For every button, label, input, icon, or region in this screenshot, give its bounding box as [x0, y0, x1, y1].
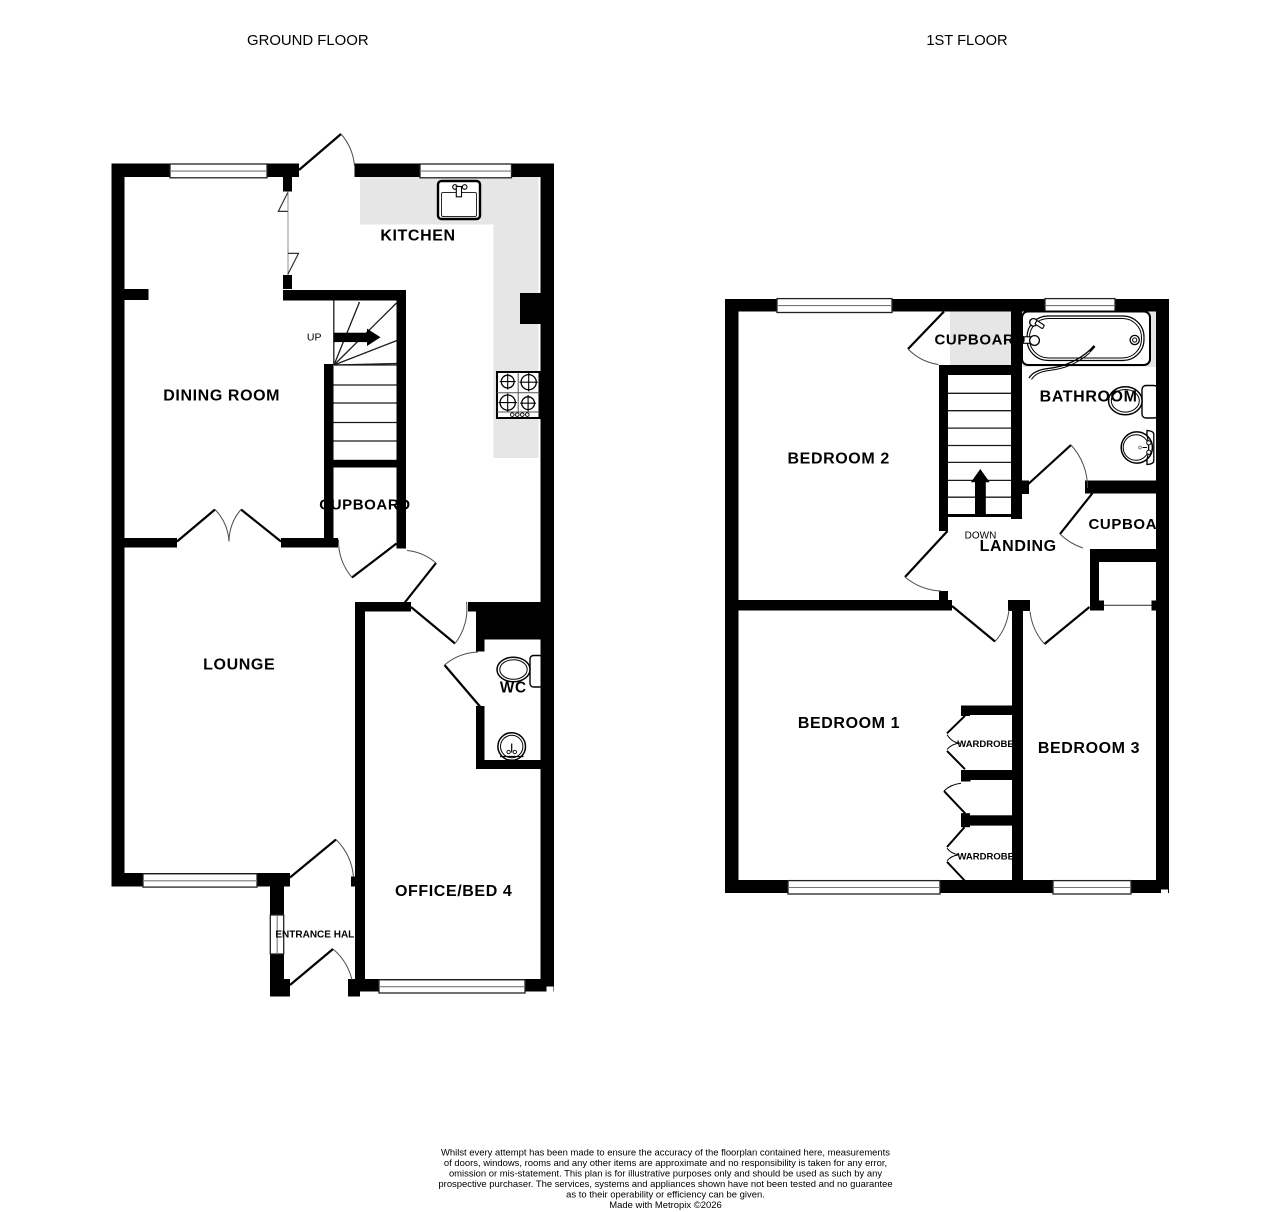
svg-text:LANDING: LANDING — [980, 538, 1057, 555]
svg-text:CUPBOARD: CUPBOARD — [319, 497, 410, 514]
svg-text:Made with Metropix ©2026: Made with Metropix ©2026 — [609, 1200, 721, 1211]
svg-text:BEDROOM 1: BEDROOM 1 — [798, 715, 900, 732]
svg-text:BEDROOM 2: BEDROOM 2 — [788, 450, 890, 467]
svg-text:WARDROBE: WARDROBE — [957, 739, 1013, 750]
svg-text:BATHROOM: BATHROOM — [1040, 389, 1138, 406]
svg-text:prospective purchaser. The ser: prospective purchaser. The services, sys… — [438, 1179, 892, 1190]
svg-text:of doors, windows, rooms and a: of doors, windows, rooms and any other i… — [444, 1158, 887, 1169]
svg-text:1ST FLOOR: 1ST FLOOR — [926, 33, 1007, 49]
svg-text:GROUND FLOOR: GROUND FLOOR — [247, 33, 369, 49]
svg-text:CUPBOARD: CUPBOARD — [934, 332, 1025, 349]
svg-text:WC: WC — [500, 680, 527, 697]
svg-text:Whilst every attempt has been: Whilst every attempt has been made to en… — [441, 1148, 890, 1159]
svg-text:LOUNGE: LOUNGE — [203, 657, 275, 674]
svg-text:as to their operability or eff: as to their operability or efficiency ca… — [566, 1190, 765, 1201]
svg-text:OFFICE/BED 4: OFFICE/BED 4 — [395, 883, 512, 900]
svg-text:ENTRANCE HAL: ENTRANCE HAL — [275, 930, 354, 941]
svg-text:UP: UP — [307, 332, 322, 344]
svg-text:CUPBOARD: CUPBOARD — [1089, 516, 1180, 533]
svg-text:KITCHEN: KITCHEN — [380, 228, 455, 245]
svg-text:WARDROBE: WARDROBE — [957, 852, 1013, 863]
svg-text:DINING ROOM: DINING ROOM — [163, 388, 280, 405]
svg-text:BEDROOM 3: BEDROOM 3 — [1038, 740, 1140, 757]
svg-text:omission or mis-statement. Thi: omission or mis-statement. This plan is … — [449, 1169, 882, 1180]
